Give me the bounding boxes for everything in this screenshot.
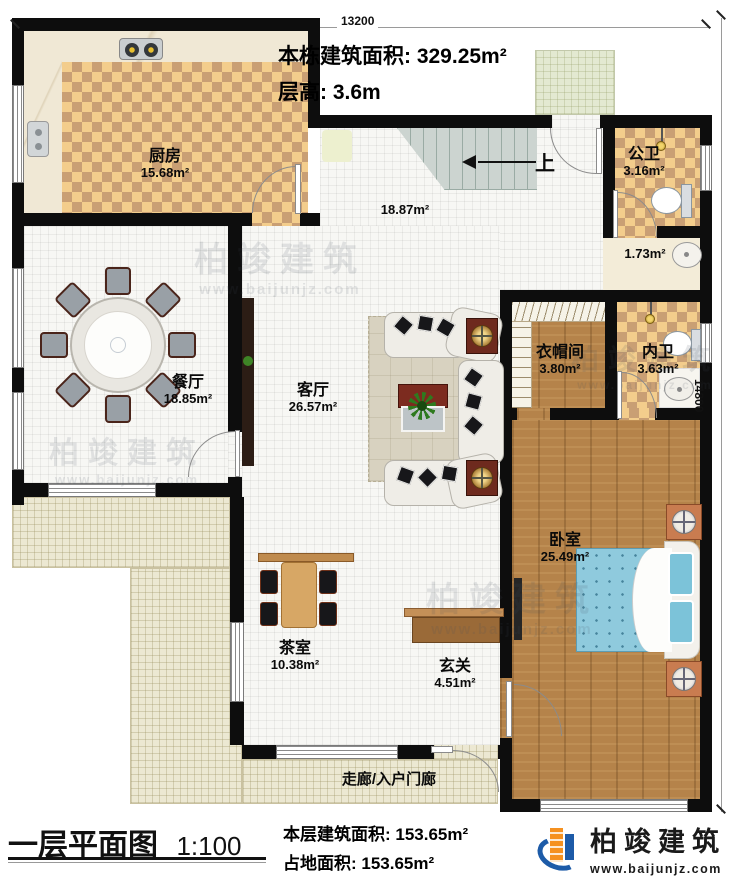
stairs-up-label: 上 — [535, 147, 555, 176]
window — [276, 745, 398, 759]
floor-plan-canvas: 柏竣建筑 www.baijunjz.com 柏竣建筑 www.baijunjz.… — [0, 0, 750, 884]
wall-segment — [500, 738, 512, 812]
sofa-pillow — [417, 315, 434, 332]
wall-segment — [550, 408, 605, 420]
room-label-tea-room: 茶室 10.38m² — [271, 640, 319, 673]
bed-sheet-fold — [632, 548, 672, 652]
window — [12, 268, 24, 368]
patio-floor — [12, 497, 230, 568]
floor-mat — [322, 130, 352, 162]
wall-segment — [308, 18, 320, 128]
kitchen-sink — [27, 121, 49, 157]
dimension-right-label: 14800 — [692, 375, 706, 416]
room-label-living: 客厅 26.57m² — [289, 382, 337, 415]
room-name: 公卫 — [623, 146, 664, 164]
room-label-corridor: 走廊/入户门廊 — [342, 771, 436, 788]
company-logo-icon — [536, 822, 584, 870]
title-underline — [8, 862, 266, 863]
dining-chair — [105, 395, 131, 423]
door-leaf — [506, 681, 512, 737]
tea-chair — [260, 570, 278, 594]
window — [12, 85, 24, 183]
company-url: www.baijunjz.com — [590, 862, 726, 876]
wall-segment — [228, 226, 242, 432]
plant-center-icon — [417, 401, 427, 411]
wall-shelf — [258, 553, 354, 562]
room-area: 3.16m² — [623, 164, 664, 179]
footprint-area-text: 占地面积: 153.65m² — [283, 849, 434, 874]
dimension-top-label: 13200 — [337, 14, 378, 28]
tv-cabinet — [242, 298, 254, 466]
wall-segment — [230, 497, 244, 745]
room-name: 茶室 — [271, 640, 319, 658]
wall-segment — [605, 290, 617, 420]
door-threshold — [517, 408, 550, 420]
dining-chair — [105, 267, 131, 295]
wall-segment — [512, 290, 700, 302]
room-label-cloakroom: 衣帽间 3.80m² — [536, 344, 584, 377]
sink-drain-icon — [35, 143, 42, 150]
door-threshold — [552, 115, 600, 128]
stair-direction-arrow-icon — [462, 155, 476, 169]
nightstand — [666, 661, 702, 697]
nightstand — [666, 504, 702, 540]
room-name: 厨房 — [141, 148, 189, 166]
stair-hall-area-label: 18.87m² — [381, 202, 429, 217]
kitchen-counter — [24, 31, 308, 62]
window — [12, 392, 24, 470]
wall-segment — [300, 213, 320, 226]
table-lamp-icon — [471, 325, 493, 347]
logo-building-icon — [550, 828, 563, 862]
table-lamp-icon — [471, 467, 493, 489]
tea-chair — [319, 602, 337, 626]
wall-segment — [320, 115, 552, 128]
window — [700, 323, 712, 363]
room-label-dining: 餐厅 18.85m² — [164, 374, 212, 407]
window — [230, 622, 244, 702]
wash-basin — [664, 377, 694, 401]
side-table — [466, 318, 498, 354]
room-area: 3.80m² — [536, 362, 584, 377]
company-logo-text: 柏竣建筑 www.baijunjz.com — [590, 820, 726, 876]
console-table — [404, 608, 504, 617]
room-label-inner-bath: 内卫 3.63m² — [637, 344, 678, 377]
wall-segment — [700, 115, 712, 812]
door-leaf — [235, 430, 240, 477]
burner-icon — [144, 43, 158, 57]
wall-segment — [12, 213, 252, 226]
dining-chair — [168, 332, 196, 358]
logo-building-icon — [565, 834, 574, 860]
bed-pillow — [668, 600, 694, 644]
room-area: 25.49m² — [541, 550, 589, 565]
room-label-public-bath: 公卫 3.16m² — [623, 146, 664, 179]
wall-segment — [12, 18, 320, 31]
toilet-bowl — [651, 187, 682, 214]
wardrobe-rail — [512, 302, 605, 322]
sofa-pillow — [441, 465, 458, 482]
plant-icon — [408, 392, 436, 420]
room-label-kitchen: 厨房 15.68m² — [141, 148, 189, 181]
wardrobe-shelves — [512, 322, 532, 408]
room-area: 15.68m² — [141, 166, 189, 181]
room-area: 10.38m² — [271, 658, 319, 673]
basin-drain-icon — [684, 252, 689, 257]
dimension-line — [721, 18, 722, 812]
dining-table — [70, 297, 166, 393]
stove — [119, 38, 163, 60]
title-underline — [8, 857, 266, 860]
side-table — [466, 460, 498, 496]
window — [48, 483, 156, 497]
wall-segment — [600, 115, 712, 128]
toilet-tank — [691, 329, 701, 361]
building-area-text: 本栋建筑面积: 329.25m² — [278, 40, 507, 70]
plant-icon — [243, 356, 253, 366]
room-area: 18.85m² — [164, 392, 212, 407]
room-label-bedroom: 卧室 25.49m² — [541, 532, 589, 565]
tea-chair — [260, 602, 278, 626]
wall-segment — [500, 290, 512, 678]
tea-chair — [319, 570, 337, 594]
room-name: 玄关 — [434, 658, 475, 676]
bedside-lamp-icon — [672, 510, 696, 534]
room-name: 走廊/入户门廊 — [342, 771, 436, 788]
tea-table — [281, 562, 317, 628]
dining-chair — [40, 332, 68, 358]
window — [700, 145, 712, 191]
company-name: 柏竣建筑 — [590, 820, 726, 859]
porch-floor — [535, 50, 615, 115]
ceiling-light-icon — [645, 314, 655, 324]
door-leaf — [596, 128, 602, 174]
stair-direction-line — [478, 161, 536, 163]
room-area: 3.63m² — [637, 362, 678, 377]
room-name: 卧室 — [541, 532, 589, 550]
door-leaf — [431, 746, 453, 753]
burner-icon — [125, 43, 139, 57]
wall-segment — [657, 226, 712, 238]
vanity-area-label: 1.73m² — [624, 246, 665, 261]
room-area: 26.57m² — [289, 400, 337, 415]
floor-area-text: 本层建筑面积: 153.65m² — [283, 820, 468, 845]
bedside-lamp-icon — [672, 667, 696, 691]
patio-floor — [130, 568, 242, 804]
room-name: 衣帽间 — [536, 344, 584, 362]
bed-pillow — [668, 552, 694, 596]
wash-basin — [672, 242, 702, 268]
dining-table-center — [110, 337, 126, 353]
toilet-tank — [681, 184, 692, 218]
console-cabinet — [412, 617, 500, 643]
window — [540, 799, 688, 812]
room-area: 4.51m² — [434, 676, 475, 691]
sink-drain-icon — [35, 129, 42, 136]
floor-height-text: 层高: 3.6m — [278, 76, 381, 106]
room-name: 客厅 — [289, 382, 337, 400]
room-label-entry: 玄关 4.51m² — [434, 658, 475, 691]
door-threshold — [252, 213, 300, 226]
tv-screen — [514, 578, 522, 640]
basin-drain-icon — [677, 387, 682, 392]
room-name: 餐厅 — [164, 374, 212, 392]
room-name: 内卫 — [637, 344, 678, 362]
